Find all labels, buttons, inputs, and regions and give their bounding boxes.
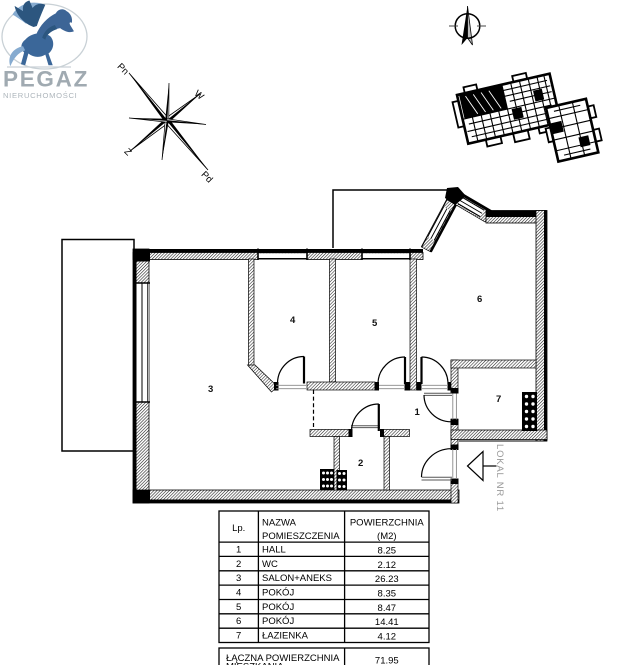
- svg-text:WC: WC: [262, 559, 278, 570]
- svg-text:NAZWA: NAZWA: [262, 518, 297, 529]
- svg-text:1: 1: [236, 545, 241, 556]
- svg-text:POKÓJ: POKÓJ: [262, 602, 294, 613]
- svg-text:2: 2: [358, 458, 363, 469]
- svg-text:POWIERZCHNIA: POWIERZCHNIA: [350, 518, 425, 529]
- svg-text:3: 3: [236, 573, 241, 584]
- svg-text:71.95: 71.95: [375, 656, 399, 665]
- svg-text:4.12: 4.12: [378, 632, 397, 643]
- svg-text:MIESZKANIA: MIESZKANIA: [226, 662, 284, 665]
- svg-text:2: 2: [236, 559, 241, 570]
- svg-text:5: 5: [236, 602, 241, 613]
- svg-text:POKÓJ: POKÓJ: [262, 616, 294, 627]
- svg-text:8.35: 8.35: [378, 589, 397, 600]
- svg-text:14.41: 14.41: [375, 617, 399, 628]
- svg-text:3: 3: [208, 384, 213, 395]
- svg-text:8.47: 8.47: [378, 603, 397, 614]
- svg-text:1: 1: [415, 407, 421, 418]
- svg-text:NIERUCHOMOŚCI: NIERUCHOMOŚCI: [3, 91, 78, 100]
- svg-text:HALL: HALL: [262, 545, 286, 556]
- svg-text:4: 4: [290, 315, 296, 326]
- svg-text:LOKAL NR 11: LOKAL NR 11: [494, 444, 505, 512]
- svg-text:4: 4: [236, 588, 241, 599]
- svg-text:26.23: 26.23: [375, 574, 399, 585]
- svg-text:PEGAZ: PEGAZ: [3, 67, 89, 92]
- svg-text:7: 7: [496, 394, 501, 405]
- svg-text:SALON+ANEKS: SALON+ANEKS: [262, 573, 332, 584]
- svg-text:POMIESZCZENIA: POMIESZCZENIA: [262, 531, 340, 542]
- svg-text:6: 6: [236, 616, 241, 627]
- svg-text:ŁAZIENKA: ŁAZIENKA: [262, 631, 309, 642]
- svg-text:2.12: 2.12: [378, 560, 397, 571]
- svg-text:Lp.: Lp.: [232, 523, 245, 534]
- svg-text:5: 5: [372, 318, 378, 329]
- svg-text:8.25: 8.25: [378, 546, 397, 557]
- svg-text:(M2): (M2): [377, 531, 397, 542]
- svg-text:6: 6: [477, 294, 482, 305]
- svg-text:POKÓJ: POKÓJ: [262, 588, 294, 599]
- svg-text:7: 7: [236, 631, 241, 642]
